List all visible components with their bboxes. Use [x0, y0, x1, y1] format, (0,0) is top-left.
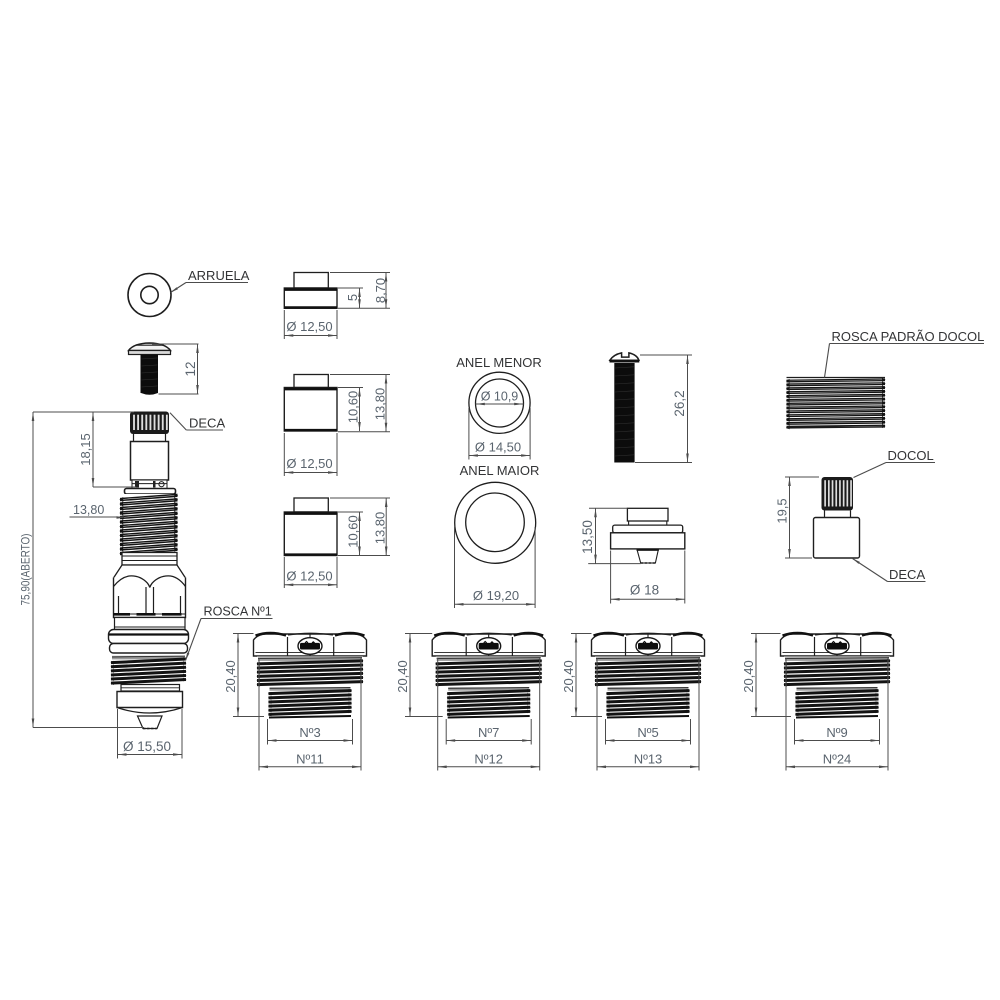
svg-text:Nº11: Nº11: [296, 752, 324, 767]
svg-text:Ø 12,50: Ø 12,50: [286, 319, 332, 334]
svg-text:10,60: 10,60: [346, 391, 361, 424]
svg-text:Nº13: Nº13: [634, 752, 663, 767]
svg-text:75,90(ABERTO): 75,90(ABERTO): [19, 534, 33, 606]
svg-text:ROSCA Nº1: ROSCA Nº1: [204, 605, 272, 619]
svg-text:8,70: 8,70: [373, 278, 388, 303]
svg-text:Ø 18: Ø 18: [630, 583, 659, 598]
svg-text:Ø 10,9: Ø 10,9: [481, 390, 519, 404]
svg-text:Ø 14,50: Ø 14,50: [475, 440, 521, 455]
svg-text:12: 12: [183, 361, 198, 376]
svg-text:Nº12: Nº12: [474, 752, 503, 767]
svg-text:Ø 12,50: Ø 12,50: [286, 456, 332, 471]
svg-text:18,15: 18,15: [78, 433, 93, 466]
svg-text:Nº24: Nº24: [823, 752, 852, 767]
svg-text:ANEL MAIOR: ANEL MAIOR: [460, 463, 540, 478]
svg-text:20,40: 20,40: [395, 660, 410, 693]
svg-text:DECA: DECA: [189, 416, 225, 431]
svg-text:Nº7: Nº7: [478, 725, 499, 740]
svg-text:Ø 15,50: Ø 15,50: [123, 739, 171, 754]
svg-text:10,60: 10,60: [346, 515, 361, 548]
svg-text:5: 5: [345, 294, 360, 301]
svg-text:Nº5: Nº5: [637, 725, 658, 740]
svg-text:Ø 12,50: Ø 12,50: [286, 569, 332, 584]
svg-text:20,40: 20,40: [741, 660, 756, 693]
svg-text:Ø 19,20: Ø 19,20: [473, 588, 519, 603]
svg-text:20,40: 20,40: [561, 660, 576, 693]
svg-text:13,80: 13,80: [373, 388, 388, 421]
svg-text:13,50: 13,50: [580, 520, 595, 554]
svg-text:13,80: 13,80: [373, 512, 388, 545]
svg-text:Nº9: Nº9: [826, 725, 847, 740]
svg-text:ROSCA PADRÃO DOCOL: ROSCA PADRÃO DOCOL: [832, 329, 985, 344]
svg-text:ANEL MENOR: ANEL MENOR: [456, 355, 541, 370]
svg-text:Nº3: Nº3: [299, 725, 320, 740]
svg-text:19,5: 19,5: [775, 498, 790, 523]
svg-text:20,40: 20,40: [223, 660, 238, 693]
svg-text:DOCOL: DOCOL: [888, 448, 934, 463]
svg-text:ARRUELA: ARRUELA: [188, 268, 250, 283]
svg-text:DECA: DECA: [889, 567, 925, 582]
svg-text:26,2: 26,2: [672, 390, 687, 416]
svg-text:13,80: 13,80: [73, 503, 104, 517]
